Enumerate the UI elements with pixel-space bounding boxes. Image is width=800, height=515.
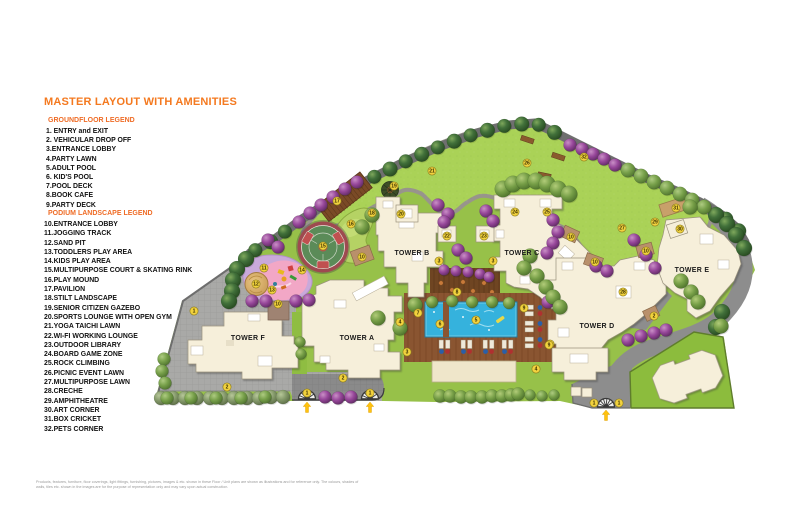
svg-text:10: 10 [592,259,598,265]
svg-text:29: 29 [652,219,658,225]
svg-text:2: 2 [226,384,229,390]
svg-text:9: 9 [548,342,551,348]
svg-text:21: 21 [429,168,435,174]
svg-text:4: 4 [399,319,402,325]
svg-text:30: 30 [677,226,683,232]
svg-text:TOWER C: TOWER C [504,250,539,257]
svg-text:31: 31 [673,205,679,211]
svg-text:TOWER D: TOWER D [579,323,614,330]
svg-text:27: 27 [619,225,625,231]
svg-text:19: 19 [391,183,397,189]
svg-text:14: 14 [299,267,305,273]
svg-text:7: 7 [417,310,420,316]
svg-text:15: 15 [320,243,326,249]
svg-text:10: 10 [643,248,649,254]
svg-text:6: 6 [439,321,442,327]
svg-text:11: 11 [261,265,267,271]
svg-text:5: 5 [475,317,478,323]
svg-text:TOWER A: TOWER A [340,335,375,342]
svg-text:TOWER E: TOWER E [675,267,710,274]
svg-text:9: 9 [523,305,526,311]
svg-text:12: 12 [253,281,259,287]
svg-text:25: 25 [544,209,550,215]
svg-text:10: 10 [275,301,281,307]
svg-text:18: 18 [369,210,375,216]
svg-text:3: 3 [406,349,409,355]
svg-text:1: 1 [369,390,372,396]
svg-text:TOWER F: TOWER F [231,335,266,342]
svg-text:23: 23 [481,233,487,239]
svg-text:3: 3 [438,258,441,264]
svg-text:32: 32 [581,154,587,160]
svg-text:24: 24 [512,209,518,215]
svg-text:1: 1 [618,400,621,406]
svg-text:26: 26 [524,160,530,166]
svg-text:1: 1 [593,400,596,406]
svg-text:1: 1 [306,390,309,396]
svg-text:10: 10 [359,254,365,260]
svg-text:8: 8 [456,289,459,295]
svg-text:2: 2 [342,375,345,381]
svg-text:4: 4 [535,366,538,372]
svg-text:17: 17 [334,198,340,204]
svg-text:TOWER B: TOWER B [394,250,429,257]
svg-text:13: 13 [269,287,275,293]
svg-text:1: 1 [193,308,196,314]
svg-text:20: 20 [398,211,404,217]
svg-text:10: 10 [568,234,574,240]
svg-text:2: 2 [653,313,656,319]
svg-text:3: 3 [492,258,495,264]
svg-text:28: 28 [620,289,626,295]
svg-text:22: 22 [444,233,450,239]
svg-text:16: 16 [348,221,354,227]
